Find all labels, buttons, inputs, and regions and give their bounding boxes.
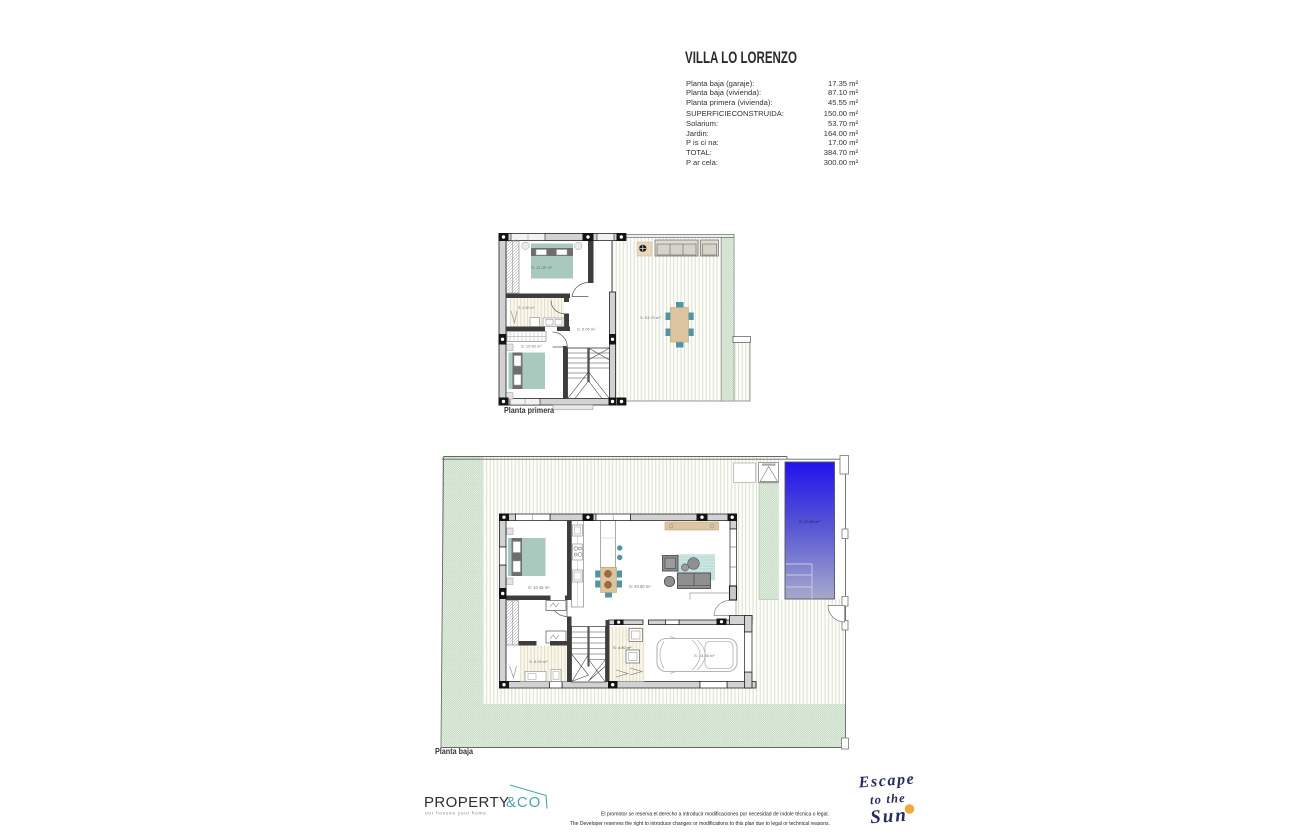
svg-text:our houses your home: our houses your home	[425, 811, 487, 816]
svg-text:S: 13.65 m²: S: 13.65 m²	[694, 653, 715, 658]
svg-text:S: 11.45 m²: S: 11.45 m²	[531, 265, 553, 270]
svg-text:Escape: Escape	[857, 771, 916, 792]
svg-text:PROPERTY: PROPERTY	[424, 794, 509, 811]
svg-text:Sun: Sun	[869, 805, 908, 829]
svg-text:S: 5.05 m²: S: 5.05 m²	[529, 659, 548, 664]
svg-text:S: 10.45 m²: S: 10.45 m²	[528, 585, 550, 590]
svg-text:S: 10.60 m²: S: 10.60 m²	[521, 344, 542, 349]
svg-text:S: 40.60 m²: S: 40.60 m²	[629, 584, 651, 589]
svg-text:S: 17.00 m²: S: 17.00 m²	[799, 519, 820, 524]
svg-text:S: 4.80 m²: S: 4.80 m²	[613, 645, 632, 650]
svg-text:S: 4.30 m²: S: 4.30 m²	[518, 306, 535, 310]
svg-text:S: 53.70 m²: S: 53.70 m²	[640, 315, 661, 320]
svg-text:&CO: &CO	[506, 794, 541, 811]
svg-text:S: 5.05 m²: S: 5.05 m²	[577, 327, 596, 332]
